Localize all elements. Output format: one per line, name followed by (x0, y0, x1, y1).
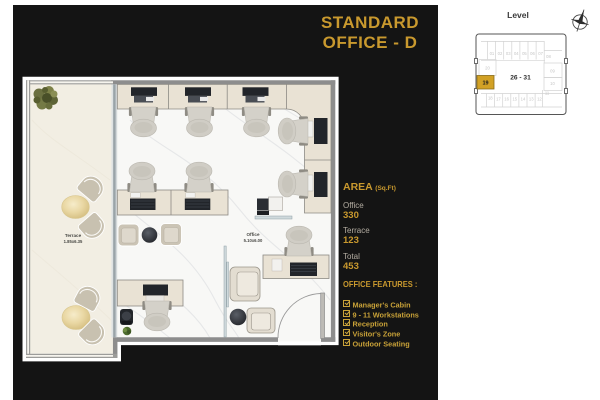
svg-text:09: 09 (550, 69, 555, 74)
svg-text:02: 02 (498, 51, 503, 56)
svg-text:07: 07 (538, 51, 543, 56)
svg-text:26 - 31: 26 - 31 (510, 75, 531, 82)
svg-text:5.10x6.00: 5.10x6.00 (244, 238, 263, 243)
svg-text:01: 01 (490, 51, 495, 56)
svg-text:Terrace: Terrace (65, 233, 82, 238)
svg-text:17: 17 (496, 97, 501, 102)
svg-text:16: 16 (504, 97, 509, 102)
svg-text:08: 08 (546, 54, 551, 59)
svg-text:19: 19 (482, 81, 488, 87)
svg-text:04: 04 (514, 51, 519, 56)
svg-text:1.85x6.35: 1.85x6.35 (64, 239, 83, 244)
svg-text:15: 15 (512, 97, 517, 102)
svg-text:06: 06 (530, 51, 535, 56)
svg-text:11: 11 (545, 91, 550, 96)
svg-text:05: 05 (522, 51, 527, 56)
svg-text:03: 03 (506, 51, 511, 56)
svg-text:20: 20 (485, 66, 490, 71)
svg-text:18: 18 (488, 96, 493, 101)
svg-text:13: 13 (529, 97, 534, 102)
svg-text:12: 12 (537, 97, 542, 102)
svg-text:14: 14 (521, 97, 526, 102)
svg-text:10: 10 (550, 81, 555, 86)
svg-text:Office: Office (246, 232, 259, 237)
